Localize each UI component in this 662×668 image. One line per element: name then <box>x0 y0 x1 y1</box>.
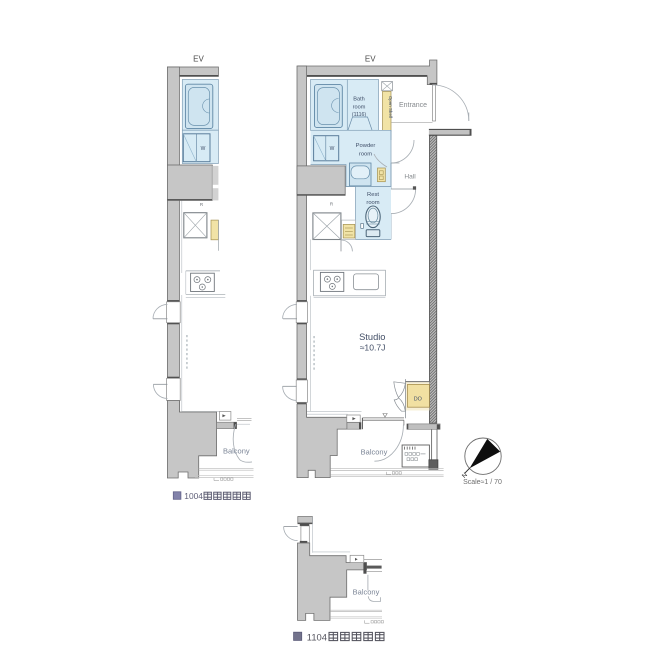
svg-text:EV: EV <box>365 55 376 64</box>
svg-text:1104: 1104 <box>307 632 327 643</box>
svg-text:Hall: Hall <box>404 174 416 181</box>
svg-text:Balcony: Balcony <box>353 588 380 597</box>
svg-text:Balcony: Balcony <box>361 447 388 456</box>
svg-text:Entrance: Entrance <box>399 102 427 109</box>
svg-text:Bath: Bath <box>353 96 365 102</box>
svg-text:Open Shelf: Open Shelf <box>388 96 393 119</box>
svg-text:room: room <box>366 200 379 206</box>
svg-text:DO: DO <box>414 396 422 402</box>
svg-text:Rest: Rest <box>367 192 379 198</box>
svg-text:room: room <box>359 151 372 157</box>
svg-text:EV: EV <box>193 55 204 64</box>
svg-text:≈10.7J: ≈10.7J <box>360 342 386 352</box>
svg-text:room: room <box>353 104 366 110</box>
svg-text:W: W <box>201 146 206 152</box>
svg-text:Scale≈1 / 70: Scale≈1 / 70 <box>463 479 502 486</box>
svg-text:Powder: Powder <box>356 143 376 149</box>
svg-text:Studio: Studio <box>359 332 385 342</box>
svg-text:1004: 1004 <box>184 491 203 501</box>
svg-text:Balcony: Balcony <box>223 447 250 456</box>
svg-text:W: W <box>330 146 335 152</box>
